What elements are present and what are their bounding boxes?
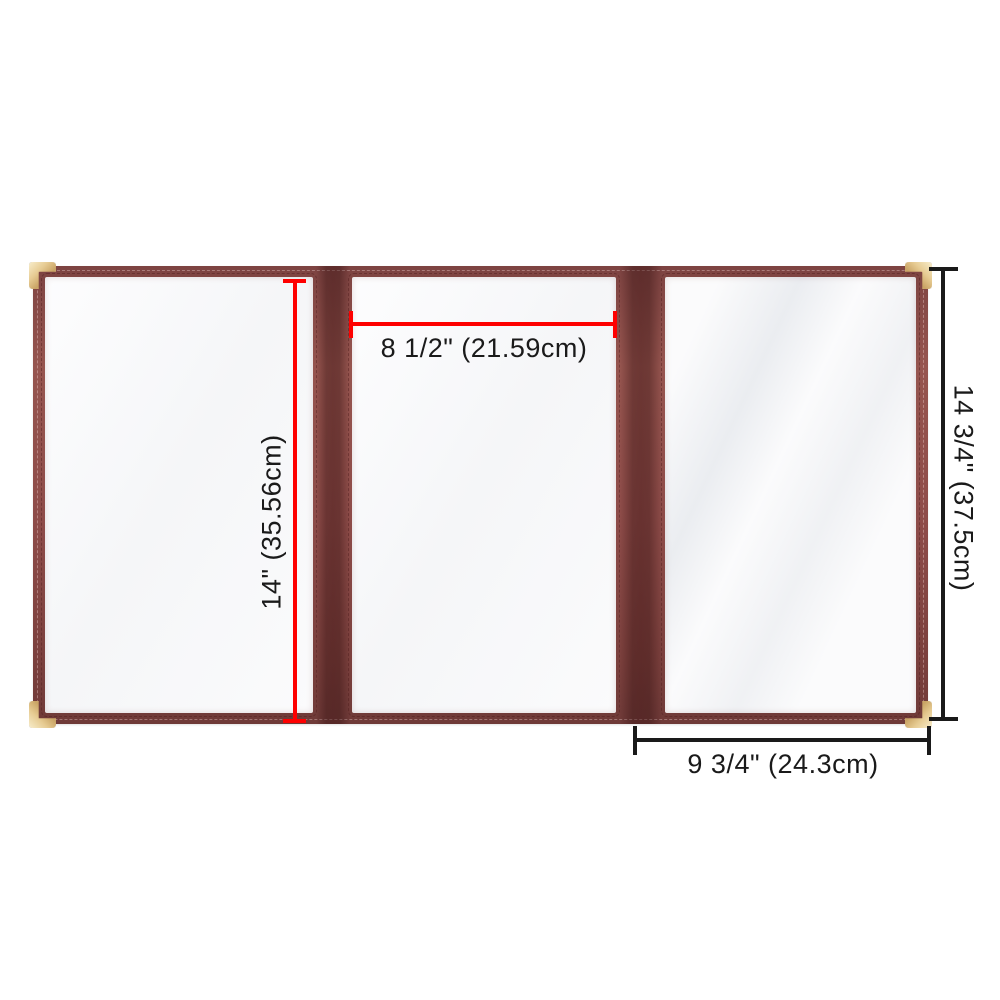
dimension-tick <box>929 717 958 721</box>
fold-spine-right <box>620 266 662 724</box>
fold-spine-left <box>316 266 350 724</box>
dimension-label-right-panel-width: 9 3/4" (24.3cm) <box>635 749 931 780</box>
dimension-label-overall-height: 14 3/4" (37.5cm) <box>948 385 979 592</box>
dimension-tick <box>283 279 306 283</box>
dimension-line-panel-width <box>351 322 617 326</box>
menu-panel-right <box>665 277 916 713</box>
dimension-label-panel-height: 14" (35.56cm) <box>257 434 288 609</box>
dimension-tick <box>283 719 306 723</box>
dimension-label-panel-width: 8 1/2" (21.59cm) <box>351 333 617 364</box>
dimension-line-overall-height <box>941 268 945 720</box>
dimension-line-panel-height <box>293 281 297 722</box>
product-photo-canvas: 14" (35.56cm) 8 1/2" (21.59cm) 14 3/4" (… <box>0 0 1000 1000</box>
dimension-line-right-panel-width <box>635 738 931 742</box>
dimension-tick <box>929 267 958 271</box>
